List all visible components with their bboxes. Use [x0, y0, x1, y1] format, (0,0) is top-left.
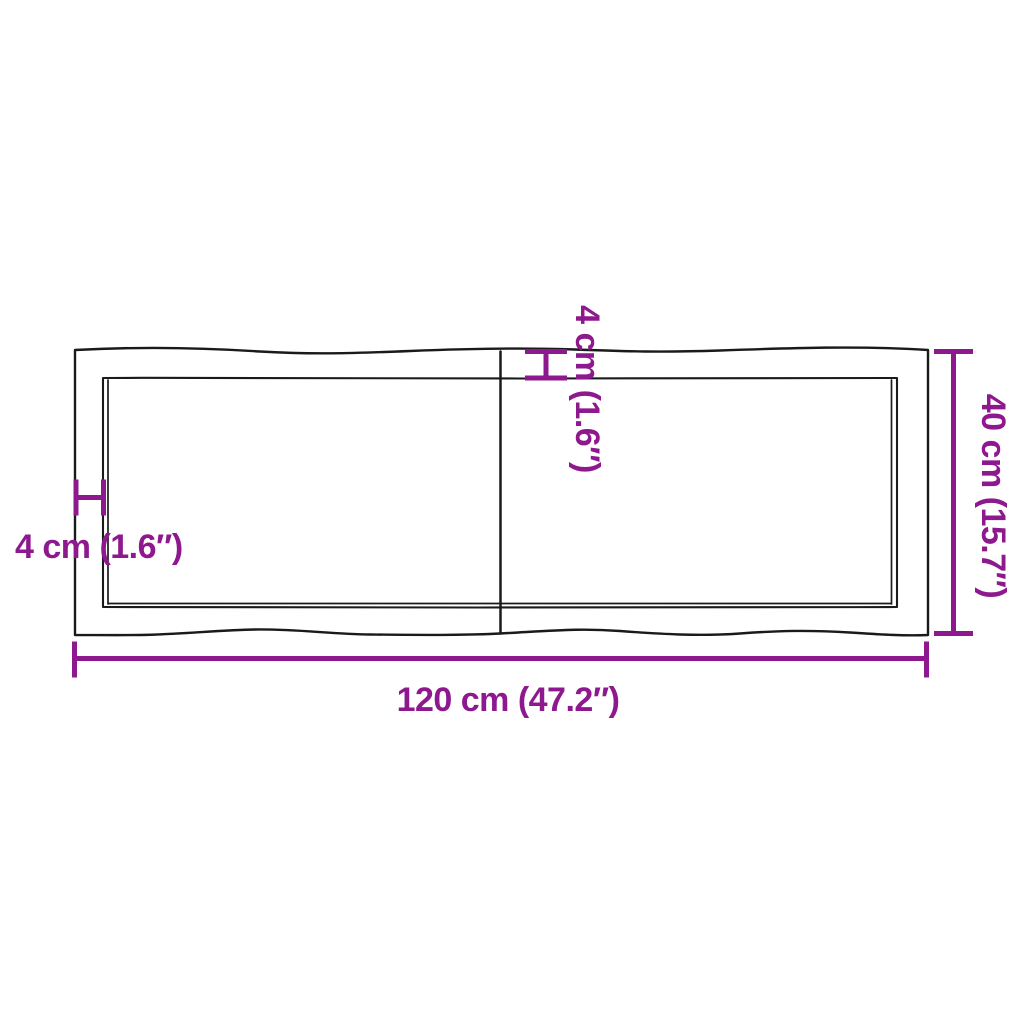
label-edge-top: 4 cm (1.6″)	[568, 305, 606, 473]
label-edge-left: 4 cm (1.6″)	[15, 528, 183, 566]
dimension-marker-width	[934, 352, 973, 634]
dimension-marker-edge-top	[525, 352, 567, 379]
dimension-marker-length	[75, 642, 927, 678]
board-outline-group	[75, 348, 928, 636]
dimension-diagram: 120 cm (47.2″) 40 cm (15.7″) 4 cm (1.6″)…	[0, 0, 1024, 1024]
product-dimension-image: 120 cm (47.2″) 40 cm (15.7″) 4 cm (1.6″)…	[0, 0, 1024, 1024]
dimension-marker-edge-left	[76, 480, 104, 516]
label-width: 40 cm (15.7″)	[974, 394, 1012, 598]
dimension-annotations	[75, 352, 974, 678]
label-length: 120 cm (47.2″)	[397, 681, 620, 719]
